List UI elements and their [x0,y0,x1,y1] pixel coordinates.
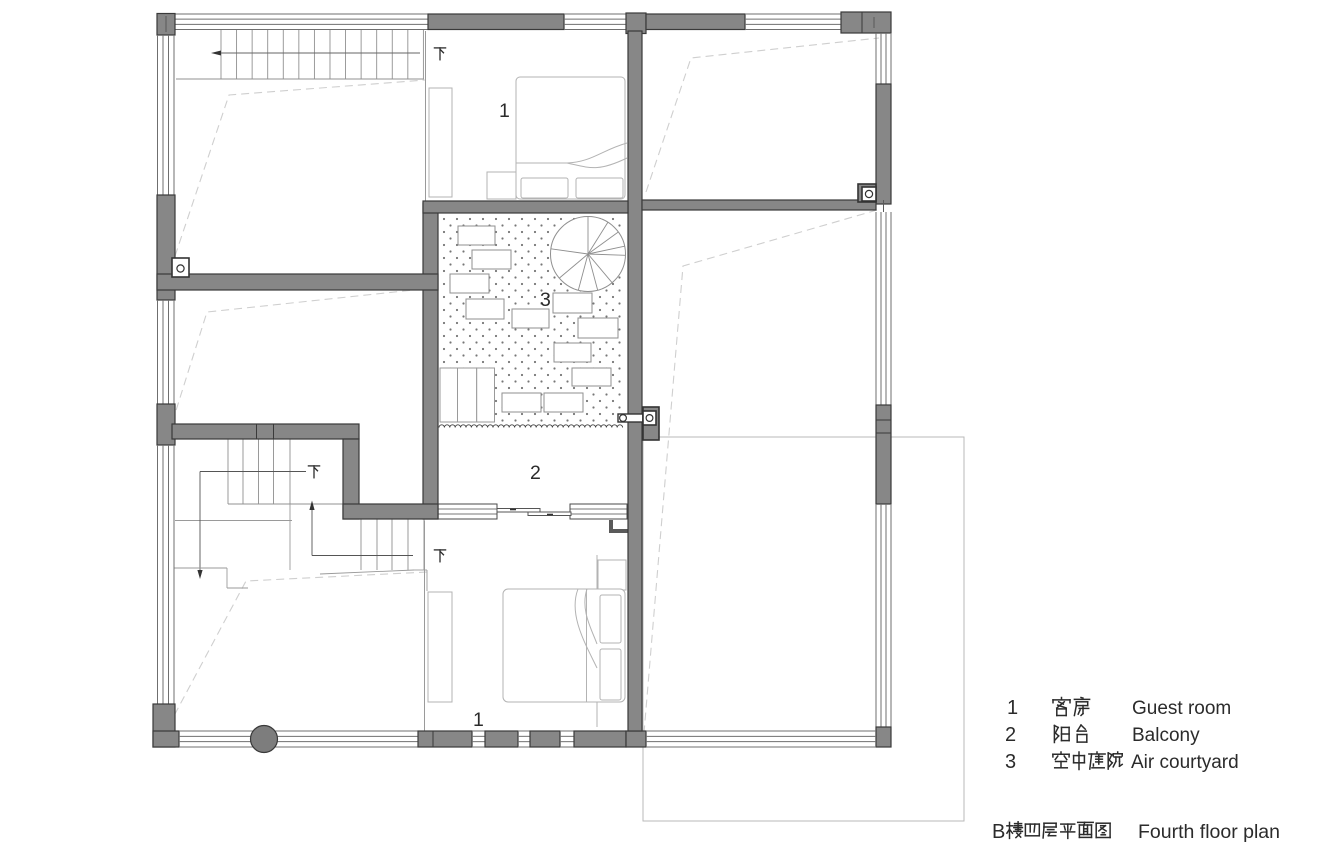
svg-text:Balcony: Balcony [1132,725,1200,746]
svg-text:B: B [992,821,1005,843]
svg-text:3: 3 [540,289,551,311]
svg-text:Fourth floor plan: Fourth floor plan [1138,821,1280,843]
svg-text:Air courtyard: Air courtyard [1131,752,1239,773]
svg-text:3: 3 [1005,751,1016,773]
svg-text:1: 1 [473,709,484,731]
svg-text:Guest room: Guest room [1132,698,1231,719]
svg-text:2: 2 [530,462,541,484]
svg-text:1: 1 [1007,697,1018,719]
svg-text:2: 2 [1005,724,1016,746]
svg-text:1: 1 [499,100,510,122]
